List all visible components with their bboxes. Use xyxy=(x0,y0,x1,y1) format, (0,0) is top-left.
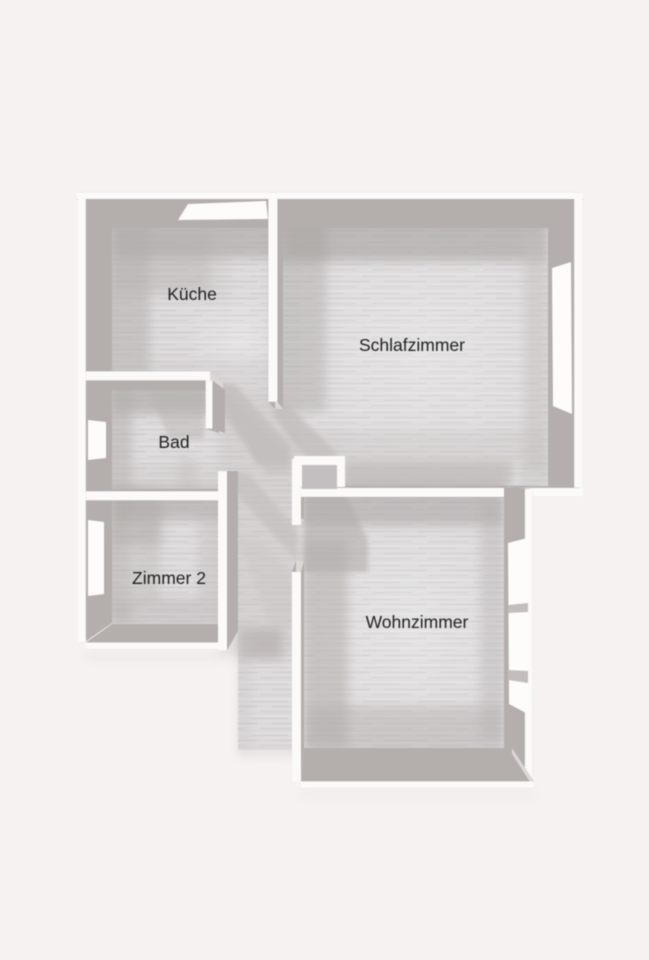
svg-text:Bad: Bad xyxy=(158,432,189,452)
svg-text:Schlafzimmer: Schlafzimmer xyxy=(359,335,465,355)
svg-text:Wohnzimmer: Wohnzimmer xyxy=(366,612,469,632)
svg-text:Zimmer 2: Zimmer 2 xyxy=(132,568,206,588)
svg-text:Küche: Küche xyxy=(167,284,217,304)
